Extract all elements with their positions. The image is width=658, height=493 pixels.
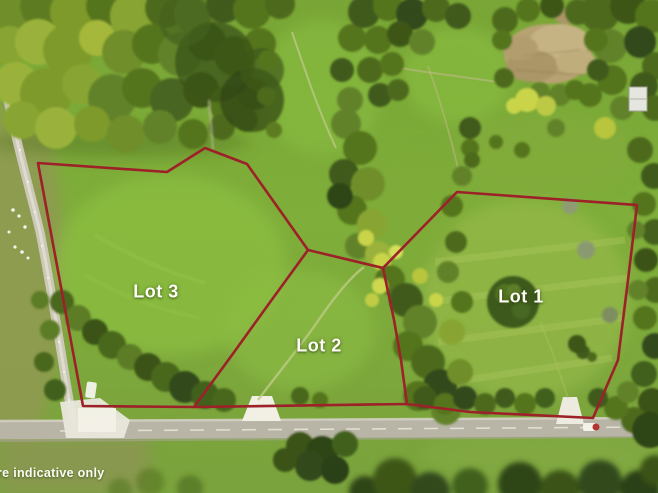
disclaimer-text: re indicative only [0, 466, 105, 480]
red-vehicle [593, 424, 600, 431]
aerial-photo-canvas [0, 0, 658, 493]
lot1-round-tree [487, 276, 539, 328]
aerial-photo: Lot 3 Lot 2 Lot 1 re indicative only [0, 0, 658, 493]
